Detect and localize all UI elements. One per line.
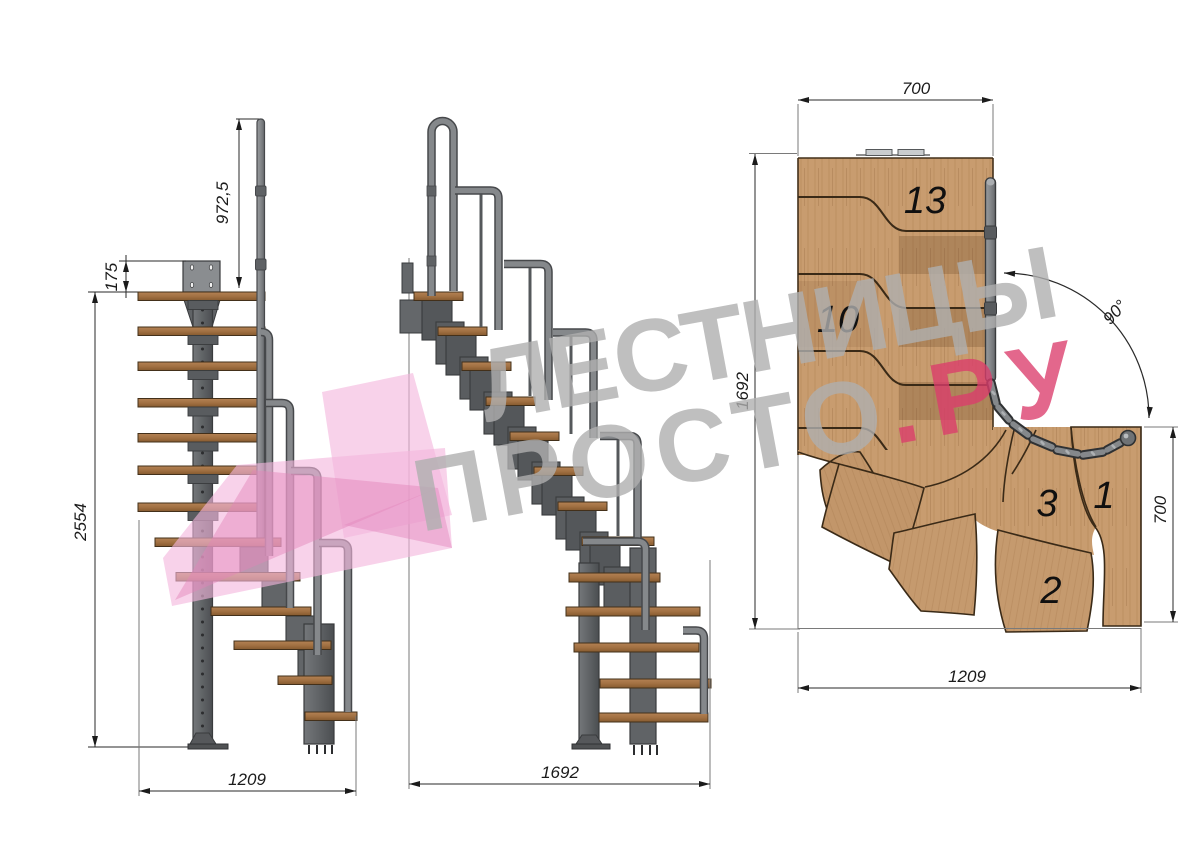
svg-text:1209: 1209 — [228, 770, 266, 789]
svg-text:1692: 1692 — [541, 763, 579, 782]
svg-text:2: 2 — [1039, 570, 1061, 612]
svg-text:700: 700 — [902, 79, 931, 98]
svg-text:175: 175 — [102, 262, 121, 291]
svg-text:2554: 2554 — [71, 503, 90, 542]
svg-text:972,5: 972,5 — [213, 181, 232, 224]
svg-text:1209: 1209 — [948, 667, 986, 686]
svg-text:1: 1 — [1093, 475, 1114, 517]
svg-text:3: 3 — [1036, 483, 1057, 525]
svg-text:700: 700 — [1151, 495, 1170, 524]
svg-text:90°: 90° — [1099, 296, 1130, 328]
svg-text:13: 13 — [904, 180, 946, 222]
